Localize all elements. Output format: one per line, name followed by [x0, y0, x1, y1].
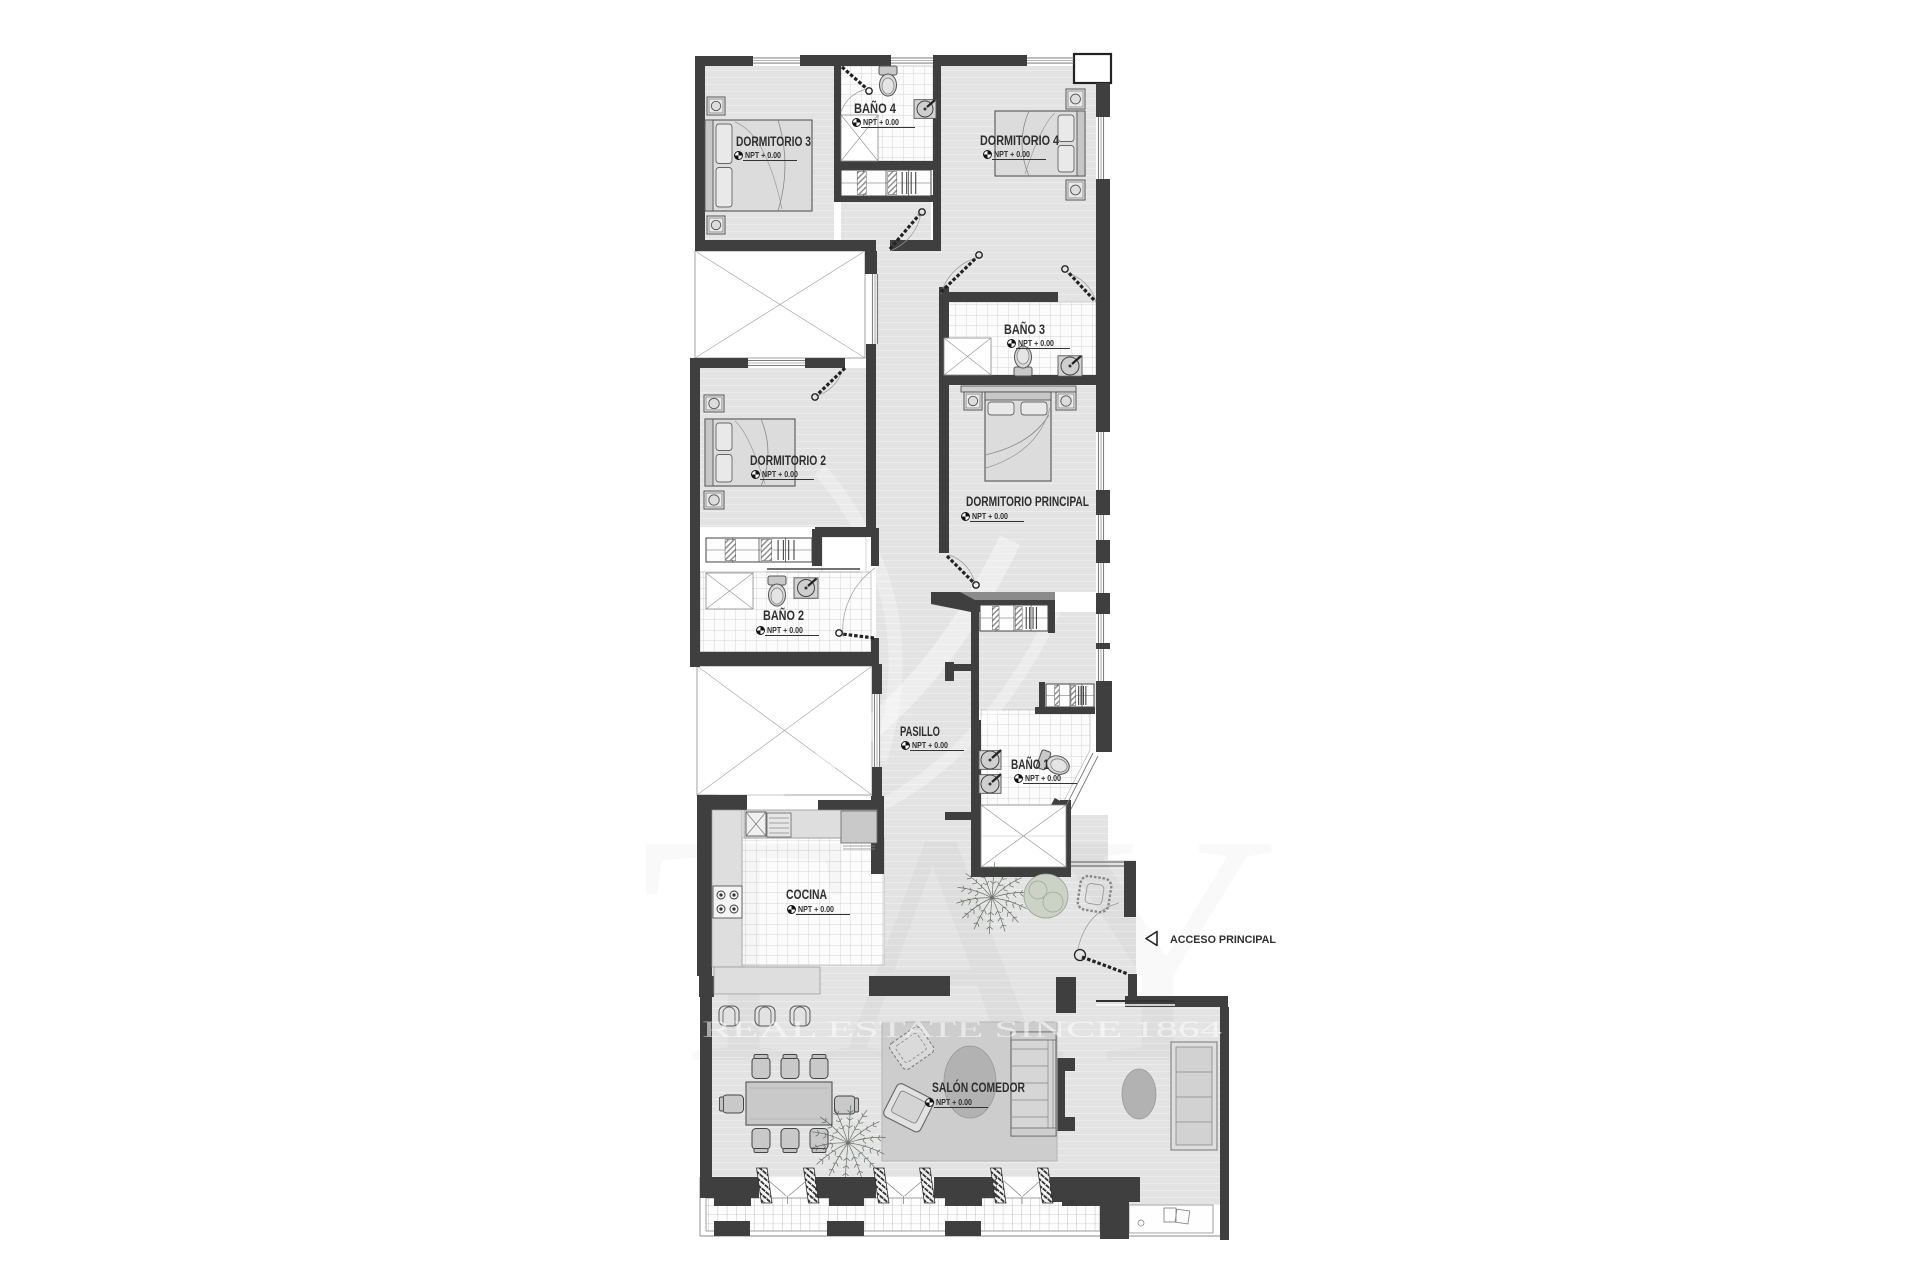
svg-text:NPT + 0.00: NPT + 0.00 — [762, 469, 798, 479]
svg-text:REAL ESTATE SINCE 1864: REAL ESTATE SINCE 1864 — [702, 1017, 1223, 1042]
svg-text:NPT + 0.00: NPT + 0.00 — [745, 150, 781, 160]
svg-text:NPT + 0.00: NPT + 0.00 — [1018, 338, 1054, 348]
svg-text:NPT + 0.00: NPT + 0.00 — [936, 1097, 972, 1107]
svg-text:NPT + 0.00: NPT + 0.00 — [767, 625, 803, 635]
svg-text:BAÑO 4: BAÑO 4 — [854, 101, 896, 116]
svg-text:COCINA: COCINA — [786, 887, 827, 902]
svg-text:NPT + 0.00: NPT + 0.00 — [863, 117, 899, 127]
svg-text:BAÑO 1: BAÑO 1 — [1011, 757, 1049, 772]
svg-text:BAÑO 2: BAÑO 2 — [763, 608, 804, 623]
svg-text:NPT + 0.00: NPT + 0.00 — [972, 511, 1008, 521]
svg-text:NPT + 0.00: NPT + 0.00 — [912, 740, 948, 750]
svg-text:SALÓN COMEDOR: SALÓN COMEDOR — [932, 1080, 1025, 1095]
svg-text:PASILLO: PASILLO — [900, 724, 940, 739]
svg-text:DORMITORIO 2: DORMITORIO 2 — [750, 453, 826, 468]
svg-text:DORMITORIO PRINCIPAL: DORMITORIO PRINCIPAL — [966, 494, 1089, 509]
svg-text:NPT + 0.00: NPT + 0.00 — [1025, 773, 1061, 783]
svg-text:ACCESO PRINCIPAL: ACCESO PRINCIPAL — [1170, 934, 1276, 946]
svg-text:BAÑO 3: BAÑO 3 — [1004, 322, 1045, 337]
svg-text:NPT + 0.00: NPT + 0.00 — [994, 149, 1030, 159]
svg-text:NPT + 0.00: NPT + 0.00 — [798, 904, 834, 914]
svg-text:DORMITORIO 3: DORMITORIO 3 — [736, 134, 811, 149]
svg-text:DORMITORIO 4: DORMITORIO 4 — [980, 133, 1059, 148]
